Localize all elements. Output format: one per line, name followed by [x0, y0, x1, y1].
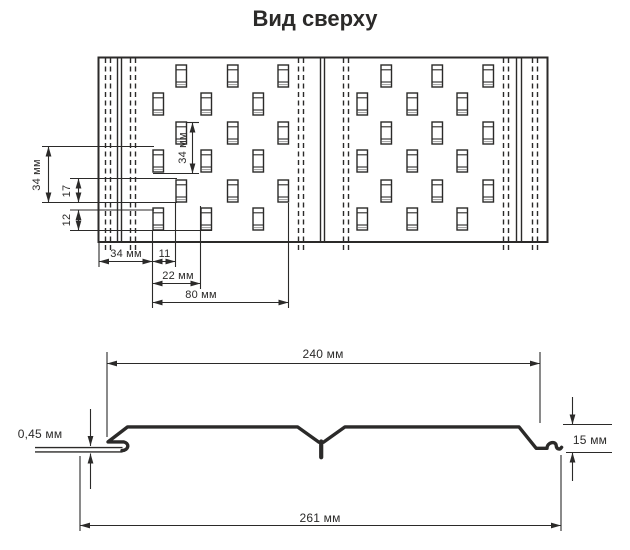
- perforation-slot: [228, 65, 239, 87]
- perforation-slot: [457, 150, 468, 172]
- perforation-slot: [176, 65, 187, 87]
- perforation-slot: [457, 208, 468, 230]
- perforation-slot: [201, 93, 212, 115]
- perforation-slot: [153, 150, 164, 172]
- perforation-slot: [381, 180, 392, 202]
- dim-label-17: 17: [61, 184, 73, 197]
- perforation-slot: [381, 65, 392, 87]
- perforation-slot: [407, 208, 418, 230]
- soffit-panel-drawing: Вид сверху 34 мм 17 12 34 мм 34 мм 11 22…: [0, 0, 630, 550]
- perforation-slot: [381, 122, 392, 144]
- perforation-slot: [483, 122, 494, 144]
- dim-label-261: 261 мм: [299, 511, 340, 525]
- dim-label-thickness: 0,45 мм: [18, 427, 63, 441]
- perforation-slot: [483, 180, 494, 202]
- dim-label-11: 11: [159, 248, 171, 260]
- perforation-slot: [407, 93, 418, 115]
- dim-label-34-left: 34 мм: [31, 159, 43, 190]
- dim-label-34-inner: 34 мм: [177, 132, 189, 163]
- perforation-slot: [201, 150, 212, 172]
- drawing-canvas: [0, 0, 630, 550]
- perforation-slot: [153, 208, 164, 230]
- panel-outline: [99, 58, 548, 243]
- perforation-slot: [357, 208, 368, 230]
- perforation-slot: [457, 93, 468, 115]
- perforation-slot: [253, 93, 264, 115]
- perforation-slot: [153, 93, 164, 115]
- perforation-slot: [253, 208, 264, 230]
- perforation-slot: [228, 180, 239, 202]
- perforation-slot: [176, 180, 187, 202]
- dim-label-22: 22 мм: [162, 270, 193, 282]
- perforation-slot: [278, 180, 289, 202]
- perforation-slot: [432, 122, 443, 144]
- perforation-slot: [432, 65, 443, 87]
- dim-label-240: 240 мм: [302, 347, 343, 361]
- perforation-slot: [278, 65, 289, 87]
- perforation-slot: [357, 150, 368, 172]
- perforation-slot: [483, 65, 494, 87]
- perforation-slot: [201, 208, 212, 230]
- dim-label-34-bottom: 34 мм: [110, 248, 141, 260]
- dim-label-15: 15 мм: [573, 433, 607, 447]
- perforation-slot: [228, 122, 239, 144]
- perforation-slot: [432, 180, 443, 202]
- dim-label-80: 80 мм: [185, 289, 216, 301]
- perforation-slot: [357, 93, 368, 115]
- dim-label-12: 12: [61, 214, 73, 227]
- perforation-slot: [253, 150, 264, 172]
- perforation-slot: [407, 150, 418, 172]
- perforation-slot: [278, 122, 289, 144]
- view-title: Вид сверху: [252, 6, 377, 32]
- profile-outline: [108, 427, 562, 451]
